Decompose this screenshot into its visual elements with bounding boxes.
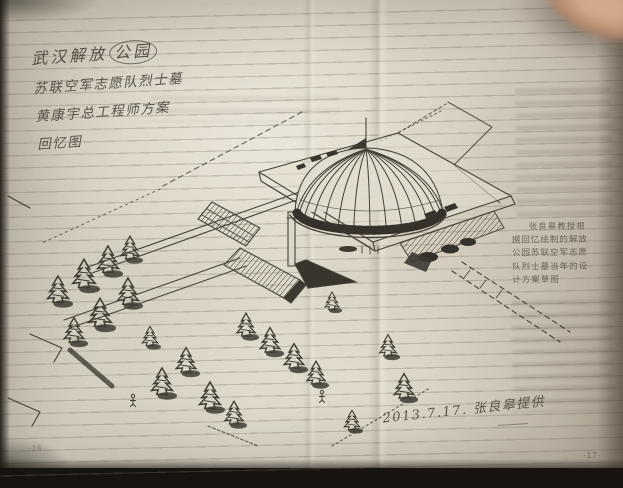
page-number-left: ·16· xyxy=(28,444,46,453)
pathways xyxy=(70,262,570,446)
title-line-3: 黄康宇总工程师方案 xyxy=(35,95,186,125)
caption-line: 公园苏联空军志愿 xyxy=(512,246,606,260)
circled-word: 公园 xyxy=(108,39,158,66)
printed-caption: 张良皋教授根 据回忆绘制的解放 公园苏联空军志愿 队烈士墓当年的设 计方案草图 xyxy=(512,220,607,287)
caption-line: 计方案草图 xyxy=(512,272,606,286)
page-number-right: ·17· xyxy=(583,451,601,460)
caption-line: 据回忆绘制的解放 xyxy=(512,233,606,247)
caption-line: 张良皋教授根 xyxy=(512,220,606,234)
title-line-2: 苏联空军志愿队烈士墓 xyxy=(33,67,184,97)
handwritten-title: 武汉解放公园 苏联空军志愿队烈士墓 黄康宇总工程师方案 回忆图 xyxy=(30,35,187,153)
photo-of-open-book: 武汉解放公园 苏联空军志愿队烈士墓 黄康宇总工程师方案 回忆图 张良皋教授根 据… xyxy=(0,0,623,468)
title-line-1-text: 武汉解放 xyxy=(31,44,108,68)
grand-staircase-upper xyxy=(198,202,260,246)
entrance-steps xyxy=(339,246,378,254)
caption-line: 队烈士墓当年的设 xyxy=(512,259,606,273)
left-margin-marks xyxy=(8,196,62,426)
